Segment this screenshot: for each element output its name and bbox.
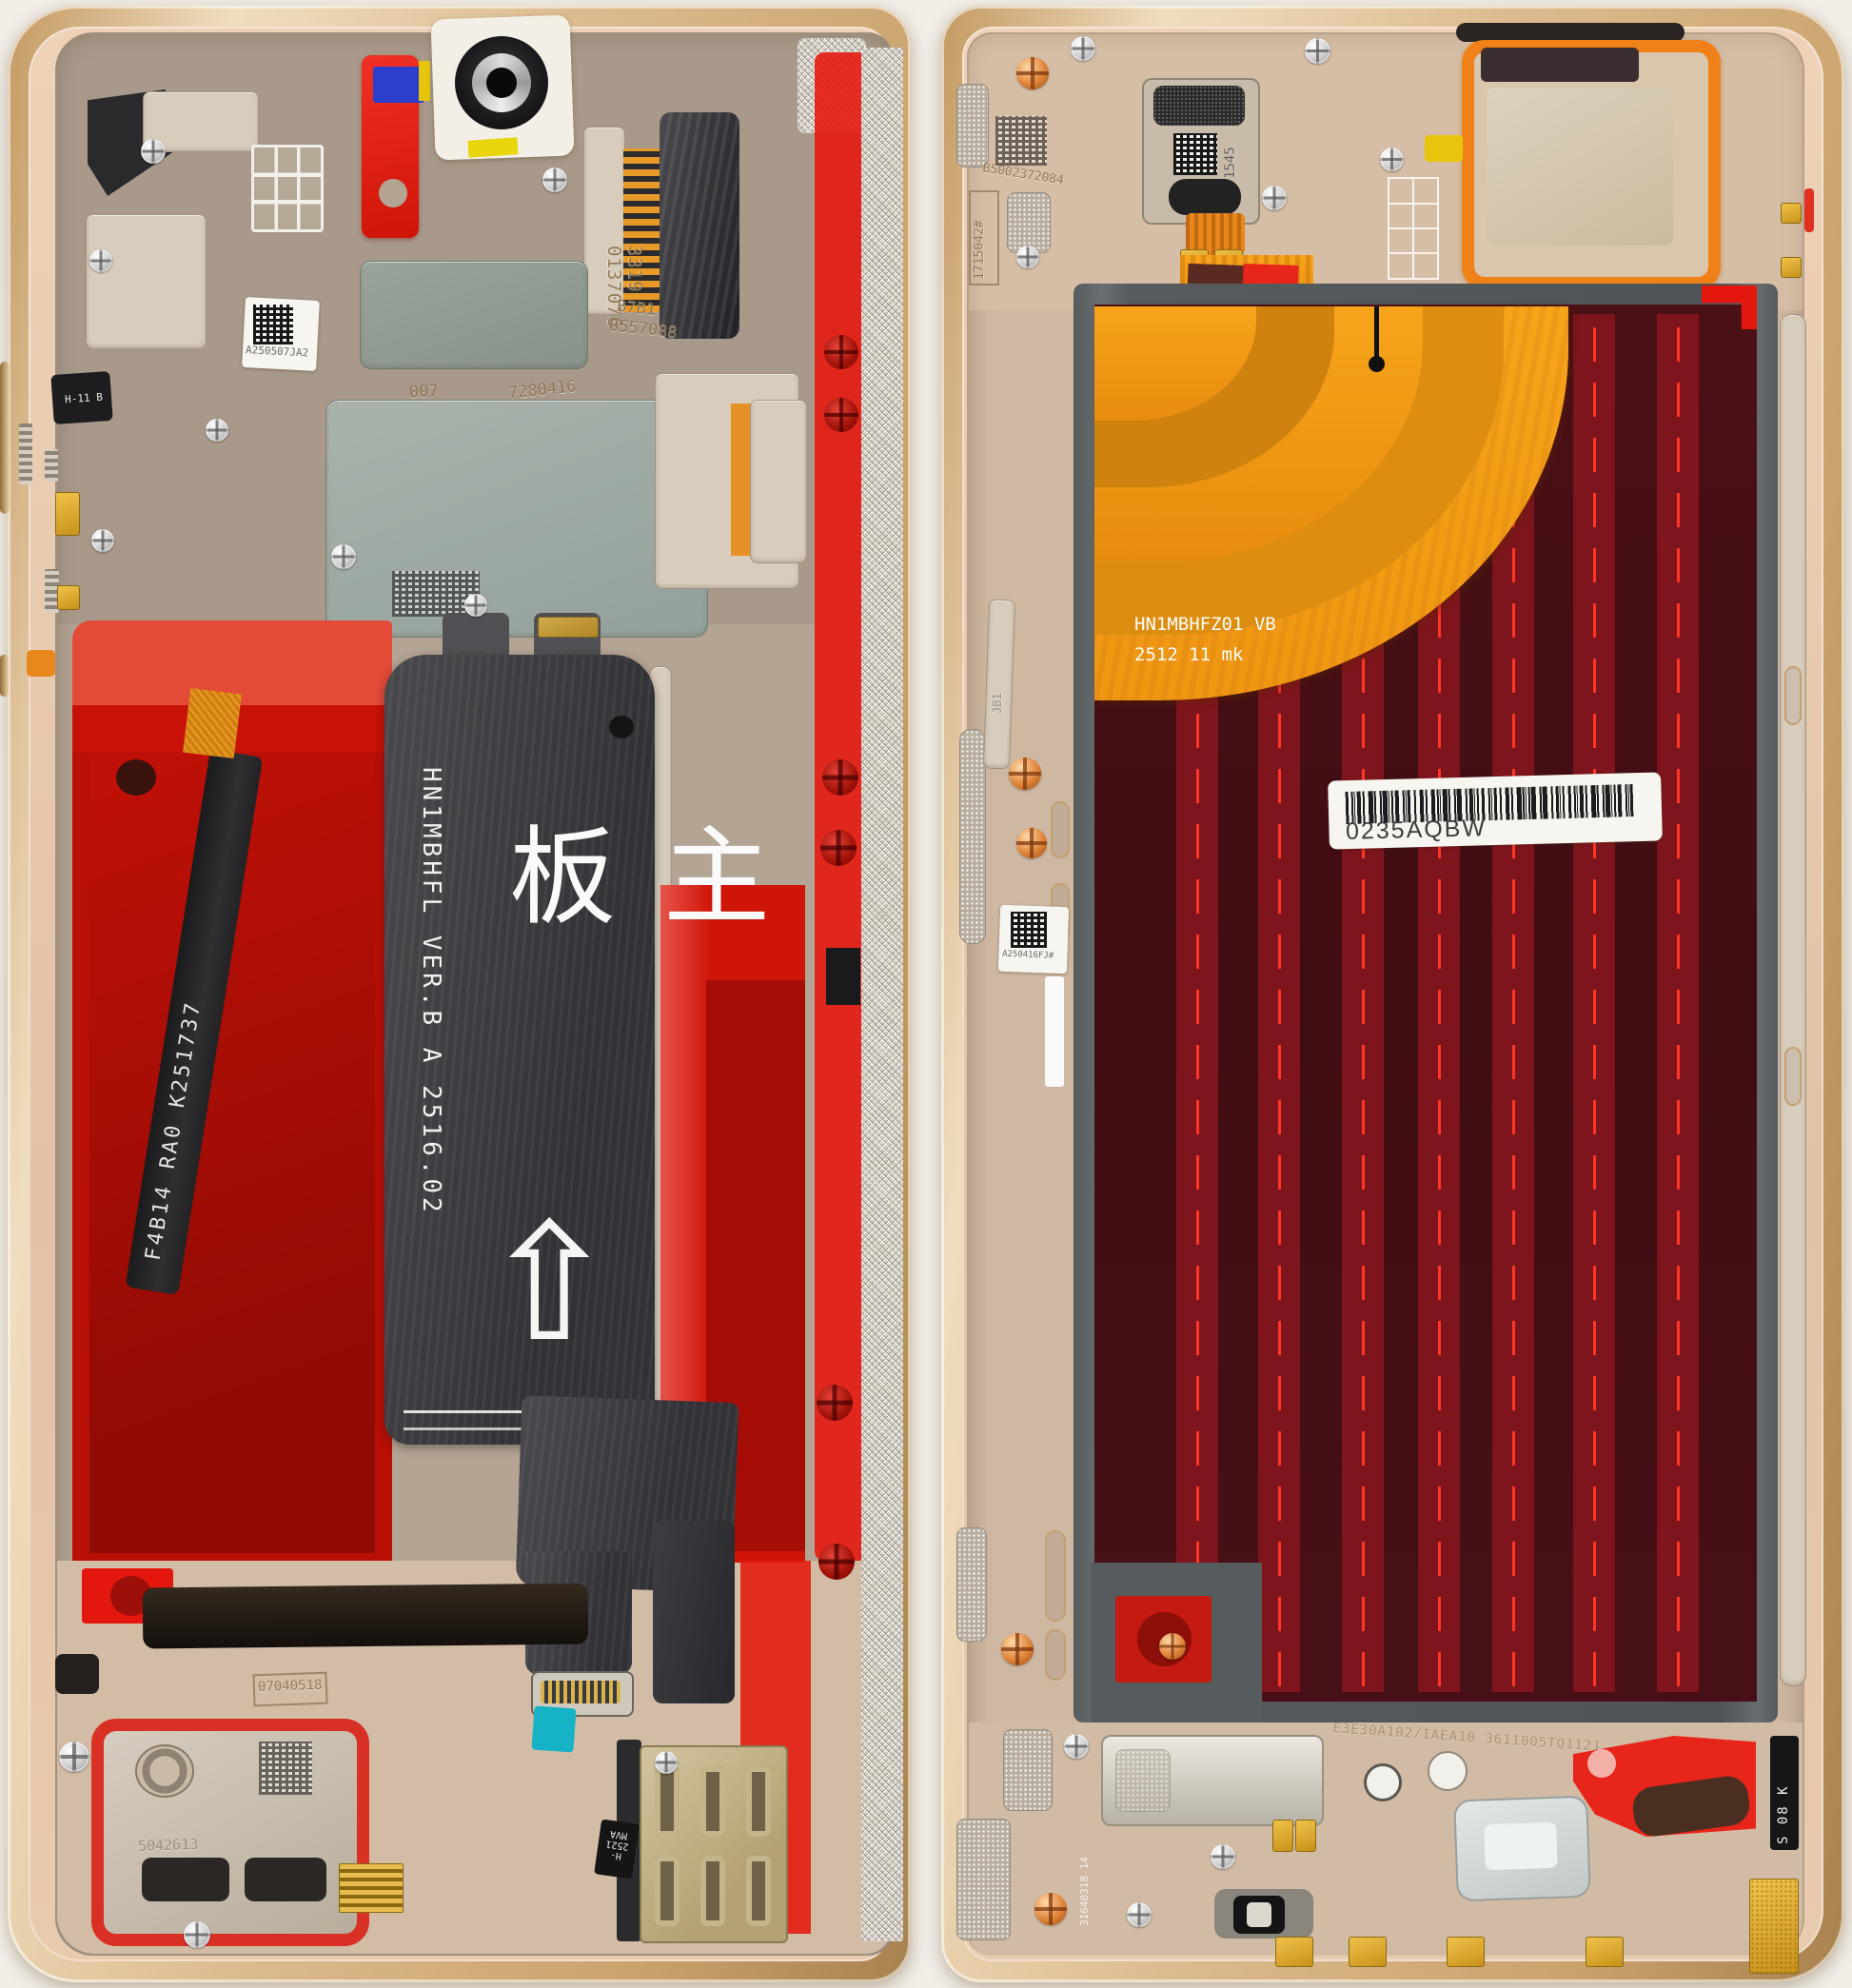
- mesh-patch: [956, 84, 989, 167]
- speaker-gasket: [91, 1719, 369, 1946]
- bottom-vertical-etch: 31640318 14: [1078, 1835, 1091, 1926]
- orange-clip: [27, 650, 55, 677]
- mainflex-tab: [443, 613, 509, 659]
- red-screw: [824, 335, 858, 369]
- mesh-patch: [1007, 192, 1051, 253]
- sim-flex-line1: MVA: [609, 1828, 627, 1840]
- red-screw: [817, 1385, 853, 1421]
- screw: [1211, 1844, 1235, 1869]
- d-gasket-hole: [1247, 1902, 1271, 1927]
- stripe-dashed-line: [1677, 320, 1680, 1686]
- bottom-antenna-pad: [339, 1863, 404, 1913]
- screw: [331, 544, 356, 569]
- speaker-bar: [143, 1584, 589, 1649]
- sim-slot: [655, 1856, 680, 1926]
- earpiece-qr: [1173, 133, 1217, 175]
- gold-contact: [55, 492, 80, 536]
- screw: [206, 419, 228, 442]
- etched-b7b1: B7B1: [616, 297, 657, 320]
- earpiece-pad-bottom: [1169, 179, 1241, 215]
- shield-upper: [360, 261, 588, 369]
- bottom-antenna-pad: [1586, 1937, 1624, 1967]
- gasket-dark-strip: [1481, 48, 1639, 82]
- speaker-etch-code: 5042613: [138, 1836, 199, 1855]
- sim-slot: [700, 1766, 725, 1837]
- gasket-hole-ring: [135, 1744, 194, 1798]
- top-bracket-plate: [86, 214, 207, 349]
- mesh-patch: [956, 1527, 987, 1642]
- screw: [542, 167, 567, 192]
- white-pad-circle: [1428, 1751, 1468, 1791]
- speaker-foam-pad: [245, 1858, 326, 1901]
- screw: [1064, 1734, 1089, 1759]
- copper-screw: [1016, 57, 1049, 89]
- hinge-knurl-strip: [861, 48, 903, 1941]
- bottom-antenna-pad: [1349, 1937, 1387, 1967]
- mesh-strip: [959, 729, 986, 944]
- sim-slot: [655, 1766, 680, 1837]
- red-screw: [824, 398, 858, 432]
- sim-slot: [700, 1856, 725, 1926]
- sim-flex-label: H-2521 MVA: [594, 1819, 640, 1879]
- screw: [1262, 186, 1287, 210]
- copper-screw: [1009, 758, 1041, 790]
- screw: [141, 139, 166, 164]
- red-screw: [818, 1544, 855, 1580]
- edge-slot: [1045, 1629, 1066, 1681]
- screw: [89, 249, 112, 272]
- camera-lens: [486, 68, 517, 98]
- screw: [59, 1742, 89, 1772]
- cyan-tape: [531, 1706, 576, 1753]
- copper-screw: [1034, 1893, 1067, 1925]
- right-edge-strip: [1780, 314, 1806, 1686]
- can-laser-etch: [1115, 1749, 1171, 1812]
- screw: [1305, 38, 1330, 64]
- antenna-comb: [19, 423, 32, 484]
- mainflex-tab-gold: [538, 617, 599, 638]
- screw: [1127, 1902, 1152, 1927]
- etched-qr: [995, 116, 1047, 166]
- red-screw: [820, 830, 857, 866]
- mainboard-arrow: ⇧: [482, 1184, 596, 1384]
- gasket-pad: [1487, 88, 1673, 246]
- antenna-comb: [45, 449, 58, 482]
- etched-vertical-code: 1715042#: [973, 194, 987, 280]
- sim-flex-line2: H-2521: [605, 1838, 629, 1860]
- flex-right-branch: [653, 1521, 735, 1703]
- corner-code-text: S 08 K: [1776, 1742, 1791, 1844]
- barcode-text: 0235AQBW: [1346, 815, 1488, 846]
- screw: [1016, 246, 1039, 268]
- side-button: [0, 362, 10, 514]
- earpiece-mesh-top: [1153, 86, 1245, 126]
- copper-screw: [1159, 1633, 1186, 1660]
- panel-stripe: [1573, 314, 1615, 1692]
- photo-stage: A250507JA2 3319 0137076 B7B1 0557088 007…: [0, 0, 1852, 1988]
- top-dark-bar: [1456, 23, 1685, 42]
- battery-hole: [116, 759, 156, 796]
- orange-flex-code: HN1MBHFZ01 VB 2512 11 mk: [1134, 609, 1353, 670]
- grid-plate: [251, 145, 324, 232]
- edge-slot: [1045, 1530, 1066, 1622]
- gold-mesh-pad: [1749, 1879, 1799, 1974]
- screw: [1071, 36, 1095, 61]
- small-black-pad: [55, 1654, 99, 1694]
- flex-test-pad: [1369, 356, 1385, 372]
- edge-contact: [1781, 203, 1802, 224]
- screw: [91, 529, 114, 552]
- panel-stripe: [1657, 314, 1699, 1692]
- camera-yellow-tab: [467, 137, 518, 158]
- mainflex-hole: [609, 716, 634, 738]
- copper-screw: [1001, 1633, 1034, 1665]
- blue-tape: [373, 67, 424, 103]
- shield-main: [325, 400, 708, 638]
- screw: [464, 594, 487, 617]
- orange-under-bracket: [731, 404, 752, 556]
- rolled-flex: [660, 112, 739, 339]
- side-key: [0, 655, 9, 697]
- flex-test-pin: [1374, 306, 1379, 360]
- red-screw: [822, 759, 858, 796]
- white-pad-circle: [1364, 1763, 1402, 1801]
- edge-slot: [1051, 801, 1070, 858]
- mesh-patch: [956, 1819, 1011, 1940]
- edge-slot: [1784, 666, 1802, 725]
- mainboard-code: HN1MBHFL VER.B A 2516.02: [417, 767, 445, 1395]
- copper-screw: [1016, 828, 1047, 858]
- speaker-pad-inner: [1484, 1822, 1558, 1871]
- edge-contact: [1781, 257, 1802, 278]
- yellow-tape-sliver: [419, 61, 430, 101]
- battery-flex-orange-top: [183, 688, 242, 758]
- bottom-antenna-pad: [1275, 1937, 1313, 1967]
- speaker-qr: [259, 1742, 312, 1795]
- qr-datamatrix-right: [1011, 912, 1047, 948]
- edge-label-sliver: [1045, 976, 1064, 1087]
- sim-flex-text: H-2521 MVA: [599, 1827, 637, 1863]
- bracket-etch-code: JB1: [991, 666, 1004, 714]
- screw: [655, 1751, 678, 1774]
- speaker-foam-pad: [142, 1858, 229, 1901]
- sim-slot: [746, 1856, 771, 1926]
- screw: [1380, 148, 1404, 171]
- yellow-clip: [1425, 135, 1463, 162]
- silver-bracket: [750, 400, 807, 563]
- mesh-patch: [1003, 1729, 1053, 1811]
- can-contact: [1295, 1820, 1316, 1852]
- pull-tab-hole: [379, 179, 407, 207]
- can-contact: [1272, 1820, 1293, 1852]
- qr-datamatrix: [253, 305, 293, 344]
- etched-table: [1388, 177, 1439, 280]
- earpiece-etch: 1545: [1223, 122, 1238, 179]
- edge-slot: [1784, 1047, 1802, 1106]
- stripe-dashed-line: [1593, 320, 1596, 1686]
- screw: [184, 1921, 210, 1948]
- mainboard-cjk: 主板: [476, 820, 784, 1049]
- b2b-connector-pins: [541, 1681, 621, 1703]
- red-edge-sliver: [1804, 188, 1814, 232]
- bottom-antenna-pad: [1447, 1937, 1485, 1967]
- sim-slot: [746, 1766, 771, 1837]
- orange-flex-line1: HN1MBHFZ01 VB: [1134, 614, 1276, 635]
- gold-contact: [57, 585, 80, 610]
- etched-box-code: 07040518: [258, 1678, 323, 1695]
- orange-flex-line2: 2512 11 mk: [1134, 644, 1243, 665]
- red-flex-hole: [1587, 1749, 1616, 1778]
- strip-black-segment: [826, 948, 860, 1005]
